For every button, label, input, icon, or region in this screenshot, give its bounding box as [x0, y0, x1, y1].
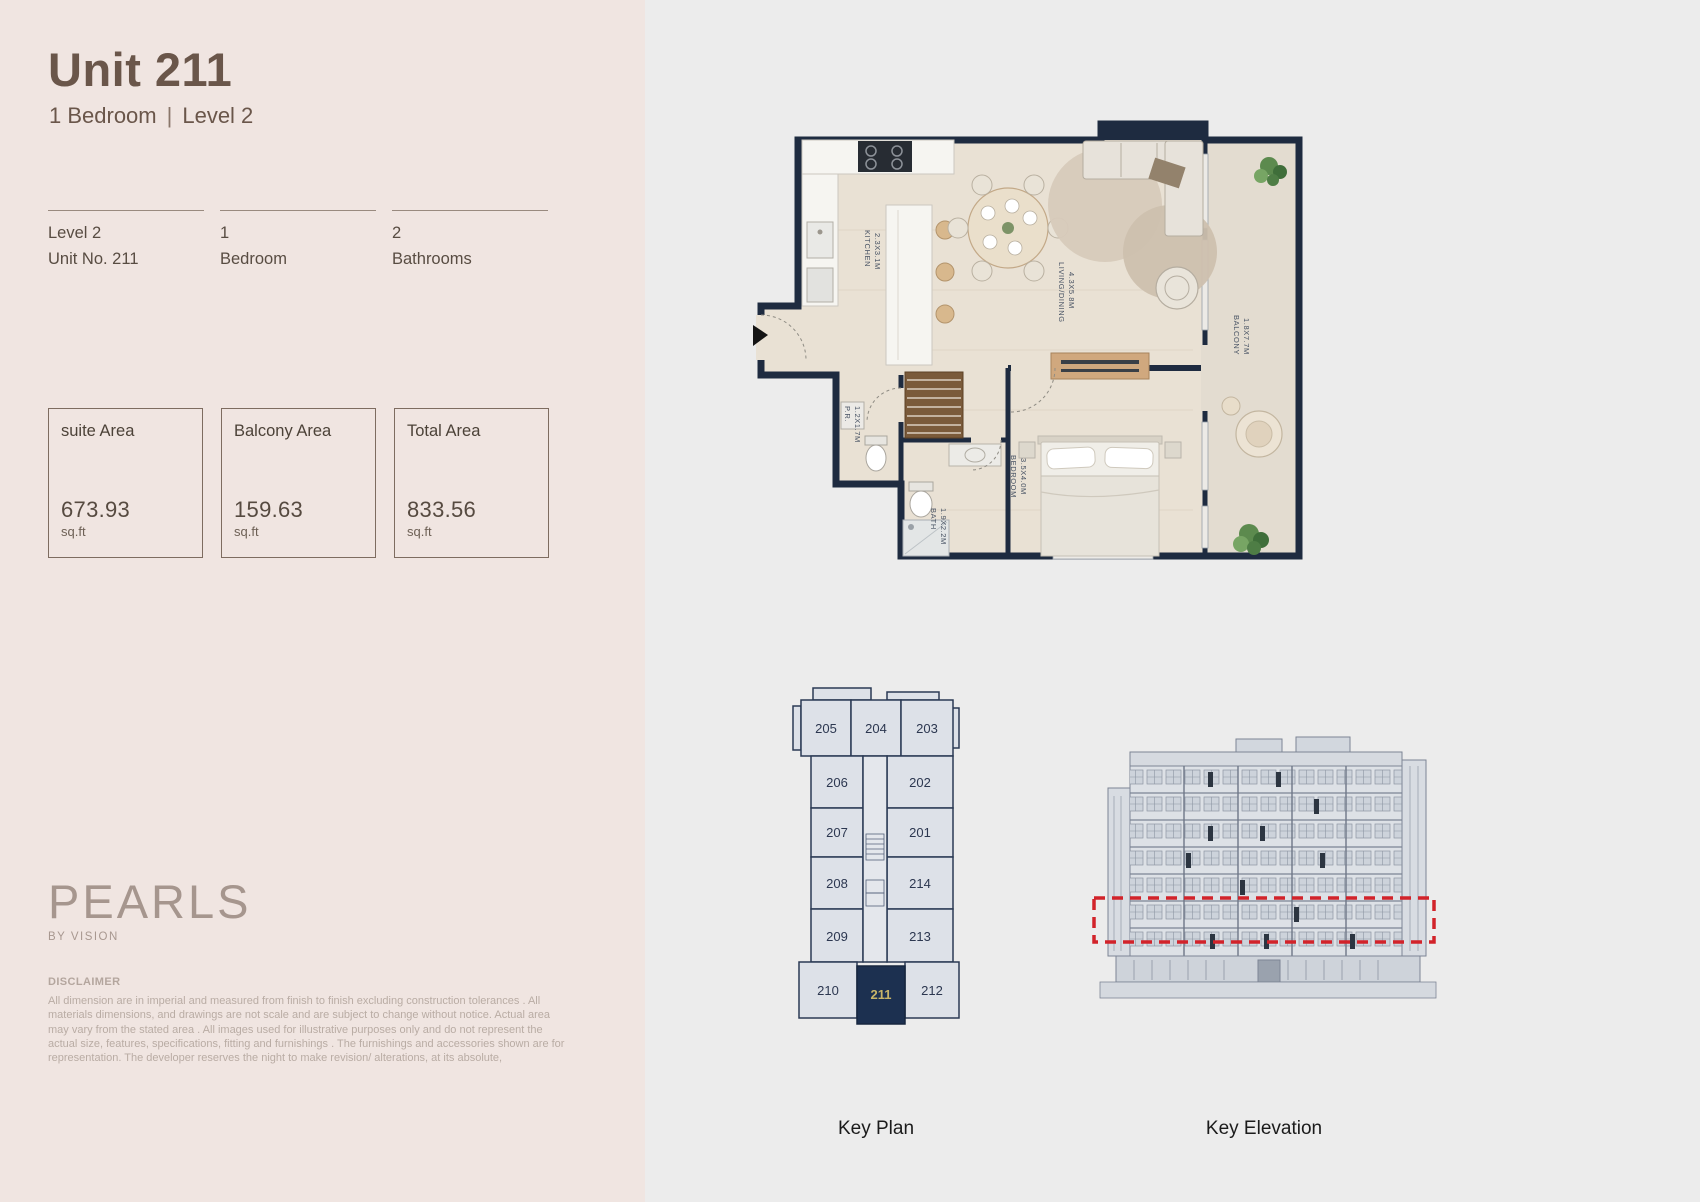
brochure-right-panel: KITCHEN 2.3X3.1M LIVING/DINING 4.3X5.8M …: [645, 0, 1700, 1202]
keyplan-unit-205: 205: [815, 721, 837, 736]
keyplan-unit-212: 212: [921, 983, 943, 998]
spec-level: Level 2 Unit No. 211: [48, 210, 204, 272]
living-label: LIVING/DINING: [1057, 262, 1066, 323]
keyplan-unit-210: 210: [817, 983, 839, 998]
brand-tagline: BY VISION: [48, 931, 251, 943]
closet: [905, 372, 963, 438]
keyplan-unit-213: 213: [909, 929, 931, 944]
keyplan-unit-207: 207: [826, 825, 848, 840]
bedroom-dims: 3.5X4.0M: [1019, 458, 1028, 495]
disclaimer-heading: DISCLAIMER: [48, 976, 568, 988]
keyplan-unit-201: 201: [909, 825, 931, 840]
spec-bedroom-line1: 1: [220, 221, 376, 247]
kitchen-label: KITCHEN: [863, 230, 872, 267]
elevation-caption: Key Elevation: [1088, 1118, 1440, 1140]
balcony-dims: 1.8X7.7M: [1242, 318, 1251, 355]
keyplan-unit-211: 211: [871, 987, 892, 1002]
bath-label: BATH: [929, 508, 938, 530]
total-area-box: Total Area 833.56 sq.ft: [394, 408, 549, 558]
spec-level-line2: Unit No. 211: [48, 247, 204, 273]
area-boxes: suite Area 673.93 sq.ft Balcony Area 159…: [48, 408, 549, 558]
balcony-floor: [1205, 140, 1299, 556]
keyplan-unit-204: 204: [865, 721, 887, 736]
floorplan-drawing: KITCHEN 2.3X3.1M LIVING/DINING 4.3X5.8M …: [753, 110, 1305, 572]
living-dims: 4.3X5.8M: [1067, 272, 1076, 309]
disclaimer: DISCLAIMER All dimension are in imperial…: [48, 976, 568, 1065]
pr-label: P.R.: [843, 406, 852, 422]
bath-dims: 1.9X2.2M: [939, 508, 948, 545]
balcony-area-unit: sq.ft: [234, 524, 259, 539]
total-area-value: 833.56: [407, 497, 476, 523]
brand-name: PEARLS: [48, 874, 251, 929]
suite-area-value: 673.93: [61, 497, 130, 523]
total-area-unit: sq.ft: [407, 524, 432, 539]
spec-bathrooms-line2: Bathrooms: [392, 247, 548, 273]
suite-area-label: suite Area: [61, 422, 190, 441]
balcony-area-box: Balcony Area 159.63 sq.ft: [221, 408, 376, 558]
spec-bedroom-line2: Bedroom: [220, 247, 376, 273]
bedroom-furniture: [1019, 436, 1181, 556]
kitchen-dims: 2.3X3.1M: [873, 233, 882, 270]
subtitle-separator: |: [167, 103, 173, 128]
balcony-label: BALCONY: [1232, 315, 1241, 355]
brochure-left-panel: Unit 211 1 Bedroom|Level 2 Level 2 Unit …: [0, 0, 645, 1202]
keyplan-unit-202: 202: [909, 775, 931, 790]
spec-columns: Level 2 Unit No. 211 1 Bedroom 2 Bathroo…: [48, 210, 548, 272]
subtitle-level: Level 2: [182, 103, 253, 128]
bedroom-label: BEDROOM: [1009, 455, 1018, 498]
spec-bedroom: 1 Bedroom: [220, 210, 376, 272]
keyplan-unit-203: 203: [916, 721, 938, 736]
spec-bathrooms-line1: 2: [392, 221, 548, 247]
pr-dims: 1.2X1.7M: [853, 406, 862, 443]
disclaimer-body: All dimension are in imperial and measur…: [48, 994, 568, 1065]
elevation-drawing: [1088, 736, 1440, 1011]
balcony-area-label: Balcony Area: [234, 422, 363, 441]
spec-bathrooms: 2 Bathrooms: [392, 210, 548, 272]
page-title: Unit 211: [48, 42, 232, 97]
balcony-area-value: 159.63: [234, 497, 303, 523]
suite-area-unit: sq.ft: [61, 524, 86, 539]
keyplan-unit-209: 209: [826, 929, 848, 944]
keyplan-drawing: 205 204 203 206 207 208 209 202 201 214 …: [791, 684, 961, 1028]
brand-logo: PEARLS BY VISION: [48, 874, 251, 943]
keyplan-unit-206: 206: [826, 775, 848, 790]
keyplan-unit-208: 208: [826, 876, 848, 891]
keyplan-unit-214: 214: [909, 876, 931, 891]
subtitle-bedroom: 1 Bedroom: [49, 103, 157, 128]
suite-area-box: suite Area 673.93 sq.ft: [48, 408, 203, 558]
keyplan-caption: Key Plan: [791, 1118, 961, 1140]
page-subtitle: 1 Bedroom|Level 2: [49, 103, 253, 129]
spec-level-line1: Level 2: [48, 221, 204, 247]
total-area-label: Total Area: [407, 422, 536, 441]
